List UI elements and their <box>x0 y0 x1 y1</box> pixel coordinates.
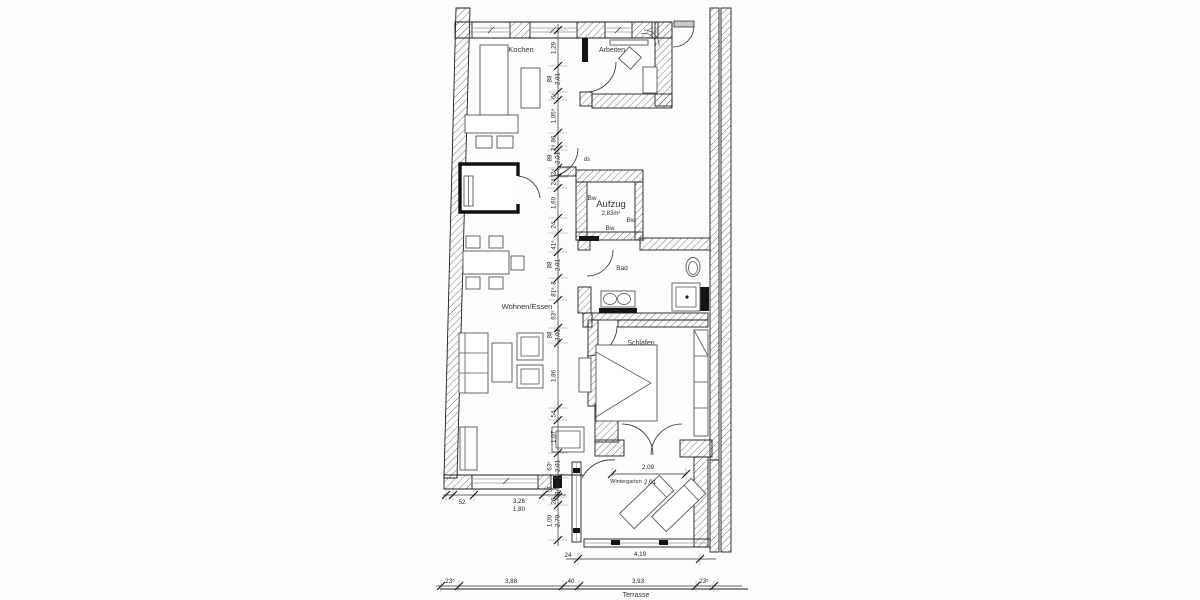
dim-label: 24 <box>565 552 572 559</box>
wg-glass-post <box>573 528 580 533</box>
right-outer-wall <box>721 8 731 552</box>
wardrobe <box>694 330 708 436</box>
dim-label: 23⁵ <box>699 578 709 585</box>
wg-glass-post <box>659 540 668 545</box>
dim-label: 4,19 <box>634 551 647 558</box>
dim-label: 1,80 <box>513 506 526 513</box>
top-wall-pier <box>455 22 472 38</box>
wg-glass-post <box>573 468 580 473</box>
dim-label: 1,86 <box>551 369 558 382</box>
dim-label: 86 <box>551 135 558 142</box>
schlafen-bottom-wall <box>595 440 624 456</box>
bed <box>596 345 657 421</box>
dim-label: 2,70 <box>555 482 562 495</box>
bad-left-pier-bottom <box>578 287 591 313</box>
dim-label: 2⁴ <box>551 145 558 151</box>
bw-label-right: Bw <box>626 217 635 224</box>
hall-bottom-wall <box>640 238 710 250</box>
room-label-wintergarten: Wintergarten <box>610 479 642 485</box>
room-label-schlafen: Schlafen <box>627 340 654 347</box>
right-inner-wall-low <box>710 460 719 552</box>
shower-drain <box>685 295 688 298</box>
sofa <box>459 333 488 393</box>
fireplace-door-arc <box>518 176 540 198</box>
dim-label: 1,07 <box>551 430 558 443</box>
entry-door-leaf <box>674 21 694 27</box>
dim-label: 8 <box>551 281 558 285</box>
dim-label: 24 <box>551 221 558 228</box>
kitchen-counter <box>480 45 508 115</box>
dim-label: 1,60 <box>551 196 558 209</box>
kitchen-stool <box>476 136 492 148</box>
coffee-table <box>492 343 512 382</box>
toilet <box>686 258 700 277</box>
wintergarten-top-wall <box>680 440 712 457</box>
fireplace-box <box>460 164 518 212</box>
floorplan-page: Kochen Arbeiten Aufzug 2,83m² Bw Bw Bw d… <box>0 0 1200 600</box>
dining-table <box>463 251 509 274</box>
bottom-wall-pier <box>444 475 472 489</box>
shaft-top-wall <box>576 170 643 182</box>
dim-label: 40 <box>568 578 575 585</box>
wg-glass-post <box>611 540 620 545</box>
dim-label: 2,01 <box>555 328 562 341</box>
dim-label: 2⁴ <box>551 169 558 175</box>
elevator-area-label: 2,83m² <box>602 211 621 217</box>
wintergarten-french-door-left <box>622 424 653 455</box>
tv-board <box>460 427 477 470</box>
dim-label: 63⁵ <box>551 310 558 320</box>
dim-label: 88 <box>547 75 554 82</box>
top-wall-pier <box>510 22 530 38</box>
dining-chair <box>489 236 503 248</box>
dining-chair <box>466 277 480 289</box>
top-wall-pier <box>577 22 605 38</box>
desk-cabinet <box>643 67 657 93</box>
dining-chair <box>466 236 480 248</box>
elevator-door <box>579 236 599 241</box>
ds-label: ds <box>584 157 590 163</box>
dim-label: 23⁵ <box>445 578 455 585</box>
dim-label: 2,01 <box>555 459 562 472</box>
room-label-kochen: Kochen <box>508 45 533 54</box>
entry-door-arc <box>673 26 694 47</box>
dim-label: 54 <box>551 410 558 417</box>
kitchen-island <box>521 68 540 108</box>
dim-label: 88 <box>547 331 554 338</box>
sink-counter <box>601 291 635 307</box>
dim-label: 6⁵ <box>551 93 558 99</box>
dim-label: 2,70 <box>555 514 562 527</box>
dim-label: 1,00 <box>547 514 554 527</box>
dim-label: 41⁵ <box>551 240 558 250</box>
shaft-right-wall <box>635 182 643 240</box>
schlafen-top-wall <box>618 320 708 327</box>
kochen-arbeiten-door-arc <box>586 62 616 92</box>
bw-label-left: Bw <box>587 195 596 202</box>
dim-label: 51 <box>547 485 554 492</box>
kitchen-counter-low <box>465 115 518 133</box>
bad-door-arc <box>587 250 613 276</box>
bw-label-bottom: Bw <box>605 225 614 232</box>
right-inner-wall <box>710 8 719 460</box>
dim-label: 2,01 <box>555 151 562 164</box>
dim-label: 2,09 <box>642 464 655 471</box>
dim-label: 24 <box>551 178 558 185</box>
dim-label: 88 <box>547 154 554 161</box>
room-label-wohnen-essen: Wohnen/Essen <box>502 302 553 311</box>
bad-duct <box>700 287 709 311</box>
room-label-bad: Bad <box>616 265 628 272</box>
kochen-arbeiten-door-leaf <box>582 38 588 62</box>
wintergarten-french-door-right <box>651 424 682 455</box>
arbeiten-right-wall <box>655 22 672 106</box>
room-label-arbeiten: Arbeiten <box>599 47 625 54</box>
dim-label: 3,88 <box>505 578 518 585</box>
dim-label: 1,29 <box>551 41 558 54</box>
elevator-label: Aufzug <box>596 199 626 210</box>
dim-label: 3,26 <box>513 498 526 505</box>
floorplan-drawing: Kochen Arbeiten Aufzug 2,83m² Bw Bw Bw d… <box>0 0 1200 600</box>
dim-label: 1,05⁵ <box>551 108 558 123</box>
kochen-door-pier <box>580 92 592 106</box>
dim-label: 2,01 <box>644 479 657 486</box>
shaft-left-wall <box>576 182 587 240</box>
bad-bottom-wall <box>592 313 708 320</box>
dim-label: 88 <box>547 261 554 268</box>
dining-chair <box>511 256 524 270</box>
terrace-label: Terrasse <box>623 592 650 599</box>
bad-left-pier-top <box>578 240 590 250</box>
dining-chair <box>489 277 503 289</box>
desk-shelf <box>610 40 648 45</box>
nightstand <box>579 358 591 392</box>
dim-label: 63⁵ <box>547 461 554 471</box>
arbeiten-bottom-wall <box>592 94 672 108</box>
dim-label: 52 <box>459 499 466 506</box>
dim-label: 2,01 <box>555 72 562 85</box>
dim-label: 2,01 <box>555 258 562 271</box>
dim-label: 81⁵ <box>551 287 558 297</box>
sink-splash-wall <box>599 308 637 313</box>
top-wall-pier <box>632 22 652 38</box>
kitchen-stool <box>497 136 513 148</box>
dim-label: 3,93 <box>632 578 645 585</box>
